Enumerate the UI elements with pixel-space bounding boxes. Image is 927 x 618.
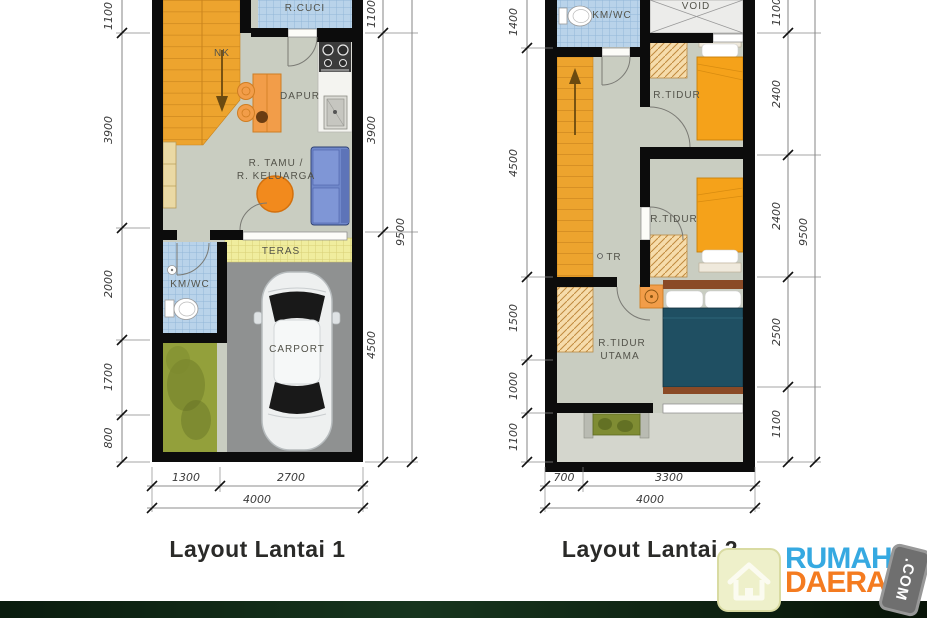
room-label-bathroom: KM/WC [170, 279, 209, 290]
dim-label: 4500 [365, 331, 378, 359]
sofa-icon [311, 147, 349, 225]
room-label-tr: TR [606, 252, 621, 263]
bathroom2-floor [557, 0, 640, 47]
room-label-nk: NK [214, 48, 230, 59]
master-bed-icon [663, 280, 743, 394]
room-label-carport: CARPORT [269, 344, 325, 355]
bedroom2-door-sill [641, 207, 650, 240]
car-icon [254, 272, 340, 450]
stove-icon [319, 41, 351, 72]
dim-label: 1100 [770, 0, 783, 26]
room-label-master-2: UTAMA [600, 351, 639, 362]
nightstand-icon [640, 285, 663, 308]
toilet2-icon [559, 6, 592, 26]
stairs2-icon [557, 57, 593, 277]
dim-label: 2400 [770, 202, 783, 230]
dim-label: 1100 [770, 410, 783, 438]
dim-label: 2400 [770, 80, 783, 108]
dim-label: 1500 [507, 304, 520, 332]
room-label-bathroom2: KM/WC [592, 10, 631, 21]
dim-label: 800 [102, 428, 115, 449]
dim-label: 1100 [365, 0, 378, 28]
dim-label: 1000 [507, 372, 520, 400]
dim-label: 2000 [102, 270, 115, 298]
planter-icon [584, 410, 649, 438]
dim-label: 3900 [365, 116, 378, 144]
room-label-living-2: R. KELUARGA [237, 171, 315, 182]
sink-icon [324, 96, 347, 129]
wardrobe2-icon [650, 235, 687, 277]
master-window [663, 404, 743, 413]
floorplan-lantai-1: R.CUCI NK DAPUR R. TAMU / R. KELUARGA TE… [0, 0, 465, 524]
brand-badge-text: .COM [892, 557, 919, 603]
room-label-laundry: R.CUCI [285, 3, 325, 14]
washbasin-icon [168, 266, 177, 275]
bed2-icon [697, 178, 743, 272]
dim-label: 1700 [102, 363, 115, 391]
room-label-living-1: R. TAMU / [249, 158, 304, 169]
dim-label: 1100 [507, 423, 520, 451]
terrace-window [243, 232, 347, 240]
wardrobe1-icon [650, 40, 687, 78]
wardrobe3-icon [557, 287, 593, 352]
brand-logo: RUMAH DAERAH .COM [717, 544, 927, 618]
room-label-terrace: TERAS [262, 246, 300, 257]
dim-label: 9500 [394, 218, 407, 246]
toilet-icon [165, 299, 198, 320]
house-icon [717, 548, 781, 612]
floorplan-lantai-2: KM/WC VOID R.TIDUR R.TIDUR TR R.TIDUR UT… [465, 0, 927, 524]
void-window [713, 34, 743, 42]
room-label-void: VOID [682, 1, 710, 12]
dim-label: 700 [554, 471, 575, 484]
dim-label: 3900 [102, 116, 115, 144]
dim-label: 2700 [277, 471, 305, 484]
bed1-icon [697, 38, 743, 140]
dim-label: 1100 [102, 2, 115, 30]
room-label-kitchen: DAPUR [280, 91, 320, 102]
dim-label: 4000 [636, 493, 664, 506]
dim-label: 4000 [243, 493, 271, 506]
dim-label: 3300 [655, 471, 683, 484]
floorplan-page: R.CUCI NK DAPUR R. TAMU / R. KELUARGA TE… [0, 0, 927, 618]
bathroom2-door-sill [602, 48, 630, 56]
cabinet-icon [163, 142, 176, 208]
dim-label: 1400 [507, 8, 520, 36]
dim-label: 9500 [797, 218, 810, 246]
floor1-title: Layout Lantai 1 [95, 536, 420, 563]
dim-label: 1300 [172, 471, 200, 484]
laundry-threshold [288, 29, 317, 37]
dim-label: 2500 [770, 318, 783, 346]
room-label-bedroom1: R.TIDUR [653, 90, 701, 101]
room-label-bedroom2: R.TIDUR [650, 214, 698, 225]
garden-area [163, 343, 217, 452]
dim-label: 4500 [507, 149, 520, 177]
room-label-master-1: R.TIDUR [598, 338, 646, 349]
